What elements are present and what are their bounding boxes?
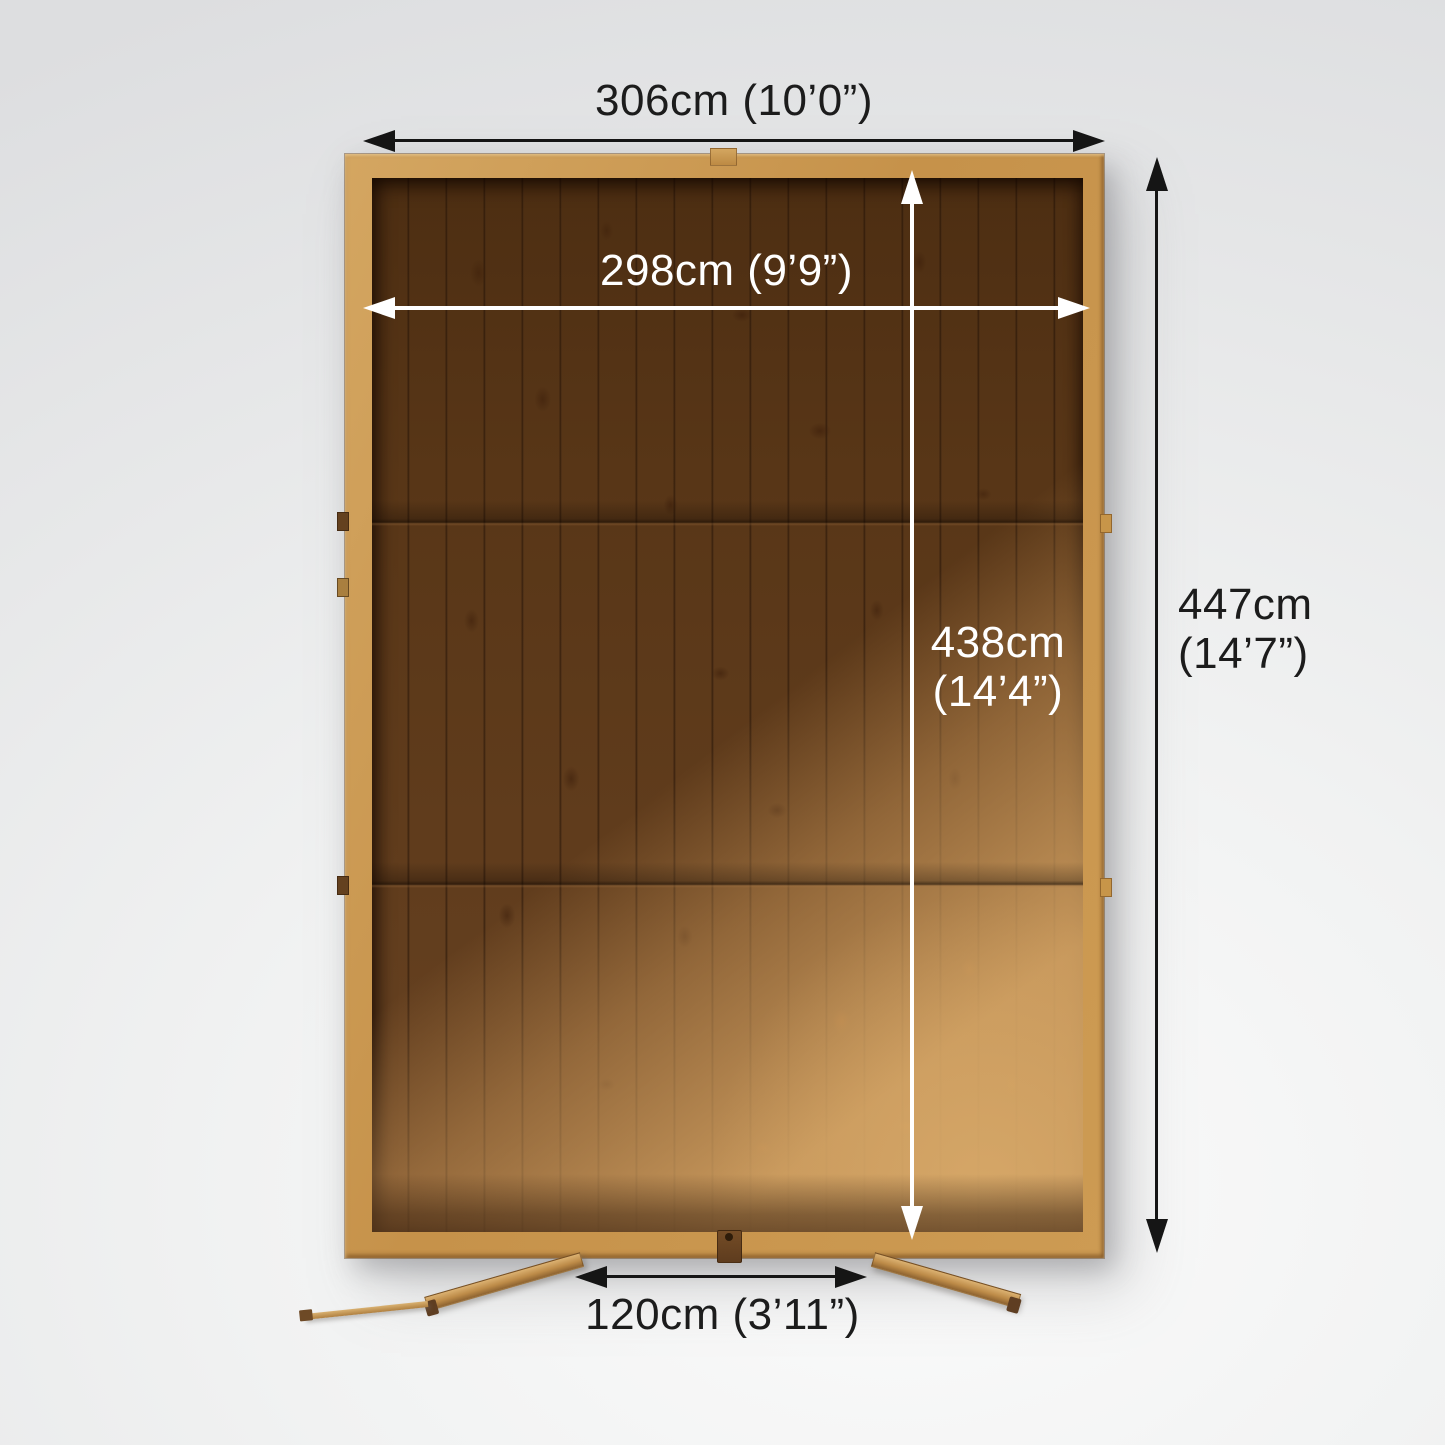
floor-panel-joint	[372, 500, 1083, 526]
external-depth-imperial: (14’7”)	[1178, 629, 1313, 678]
internal-depth-metric: 438cm	[913, 618, 1083, 667]
door-hinge-bracket	[299, 1309, 313, 1321]
external-depth-label: 447cm (14’7”)	[1178, 580, 1313, 679]
door-hinge-bracket	[1006, 1296, 1022, 1314]
external-depth-metric: 447cm	[1178, 580, 1313, 629]
frame-tab-left	[337, 578, 349, 597]
arrow-head-right-icon	[1058, 297, 1090, 319]
product-dimension-diagram: 306cm (10’0”) 298cm (9’9”) 438cm (14’4”)…	[0, 0, 1445, 1445]
arrow-head-down-icon	[901, 1206, 923, 1240]
left-door-edge	[303, 1301, 428, 1320]
frame-tab-left	[337, 512, 349, 531]
arrow-line	[389, 139, 1079, 142]
external-depth-arrow	[1146, 157, 1168, 1253]
frame-tab-right	[1100, 514, 1112, 533]
internal-depth-imperial: (14’4”)	[913, 667, 1083, 716]
floor-panel-joint	[372, 862, 1083, 888]
external-width-label: 306cm (10’0”)	[363, 76, 1105, 125]
door-width-arrow	[575, 1266, 867, 1288]
arrow-line	[601, 1275, 841, 1278]
frame-tab-right	[1100, 878, 1112, 897]
floor-bottom-shadow	[372, 1174, 1083, 1232]
internal-width-arrow	[363, 297, 1090, 319]
door-width-label: 120cm (3’11”)	[480, 1290, 965, 1339]
frame-tab-left	[337, 876, 349, 895]
door-latch-block	[717, 1230, 742, 1263]
external-width-arrow	[363, 130, 1105, 152]
arrow-head-right-icon	[835, 1266, 867, 1288]
internal-depth-label: 438cm (14’4”)	[913, 618, 1083, 717]
arrow-head-down-icon	[1146, 1219, 1168, 1253]
arrow-head-right-icon	[1073, 130, 1105, 152]
arrow-line	[389, 306, 1064, 310]
internal-width-label: 298cm (9’9”)	[363, 246, 1090, 295]
arrow-line	[1155, 185, 1158, 1225]
